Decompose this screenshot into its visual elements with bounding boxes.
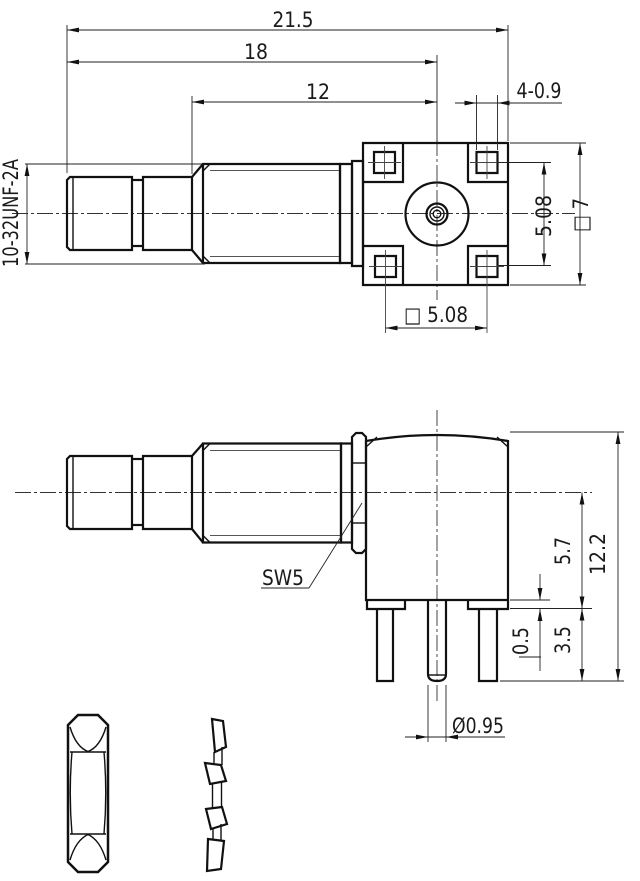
middle-view-dimensions: SW5 12.2 5.7 3.5 0.5 bbox=[261, 432, 624, 742]
cone-top bbox=[192, 164, 203, 177]
dim-length-to-center: 18 bbox=[67, 40, 437, 64]
leg-length-text: 3.5 bbox=[551, 626, 575, 654]
washer-tooth-4 bbox=[207, 839, 224, 871]
hole-pitch-vertical-text: 5.08 bbox=[532, 195, 556, 237]
dim-standoff: 0.5 bbox=[509, 574, 550, 671]
top-view bbox=[12, 140, 575, 333]
pcb-leg-left bbox=[377, 609, 393, 681]
thread-spec-text: 10-32UNF-2A bbox=[0, 159, 23, 267]
dim-thread-length: 12 bbox=[192, 80, 437, 104]
nut-chamfer-arc-bottom bbox=[70, 835, 106, 861]
hole-callout-text: 4-0.9 bbox=[517, 79, 562, 103]
nut-facet-arc-right bbox=[104, 752, 106, 834]
washer-tooth-2 bbox=[205, 763, 226, 784]
washer-tooth-3 bbox=[206, 807, 227, 829]
cone-bottom-2 bbox=[192, 529, 203, 543]
nut-facet-arc-left bbox=[70, 752, 72, 834]
standoff-text: 0.5 bbox=[509, 627, 533, 655]
dim-pin-diameter: Ø0.95 bbox=[405, 685, 505, 742]
dim-total-length: 21.5 bbox=[67, 8, 508, 32]
middle-view bbox=[15, 410, 592, 703]
dim-length-to-center-text: 18 bbox=[244, 40, 268, 64]
dim-hole-pitch-horizontal: □ 5.08 bbox=[386, 303, 488, 328]
hole-pitch-horizontal-text: □ 5.08 bbox=[404, 303, 468, 327]
dim-axis-to-base: 5.7 bbox=[510, 493, 592, 609]
cone-bottom bbox=[192, 250, 203, 263]
nut-chamfer-arc-top bbox=[70, 727, 106, 752]
standoff-left bbox=[367, 600, 405, 609]
nut-side-view bbox=[68, 715, 108, 872]
axis-to-base-text: 5.7 bbox=[551, 537, 575, 565]
dim-thread-length-text: 12 bbox=[306, 80, 330, 104]
top-view-dimensions: 21.5 18 12 10-32UNF-2A 4-0.9 bbox=[0, 8, 593, 328]
label-wrench-size: SW5 bbox=[261, 503, 362, 590]
dim-hole-callout: 4-0.9 bbox=[455, 79, 562, 150]
dim-leg-length: 3.5 bbox=[551, 609, 582, 682]
lock-washer-side-view bbox=[205, 719, 227, 871]
body-corner-chamfer-left bbox=[366, 437, 377, 447]
threaded-body-outline-2 bbox=[203, 444, 341, 543]
body-corner-chamfer-right bbox=[497, 437, 508, 447]
overall-height-text: 12.2 bbox=[586, 533, 610, 575]
washer-tooth-1 bbox=[212, 719, 226, 752]
wrench-size-text: SW5 bbox=[262, 566, 304, 590]
flange-square-text: □ 7 bbox=[569, 198, 593, 232]
cone-top-2 bbox=[192, 444, 203, 457]
connector-drawing: 21.5 18 12 10-32UNF-2A 4-0.9 bbox=[0, 0, 640, 881]
dim-total-length-text: 21.5 bbox=[273, 8, 314, 32]
standoff-right bbox=[468, 600, 508, 609]
pcb-leg-right bbox=[479, 609, 497, 681]
pin-diameter-text: Ø0.95 bbox=[452, 714, 504, 738]
drawing-sheet: 21.5 18 12 10-32UNF-2A 4-0.9 bbox=[0, 0, 640, 881]
dim-hole-pitch-vertical: 5.08 bbox=[497, 163, 556, 266]
hex-nut-outline bbox=[352, 433, 366, 553]
